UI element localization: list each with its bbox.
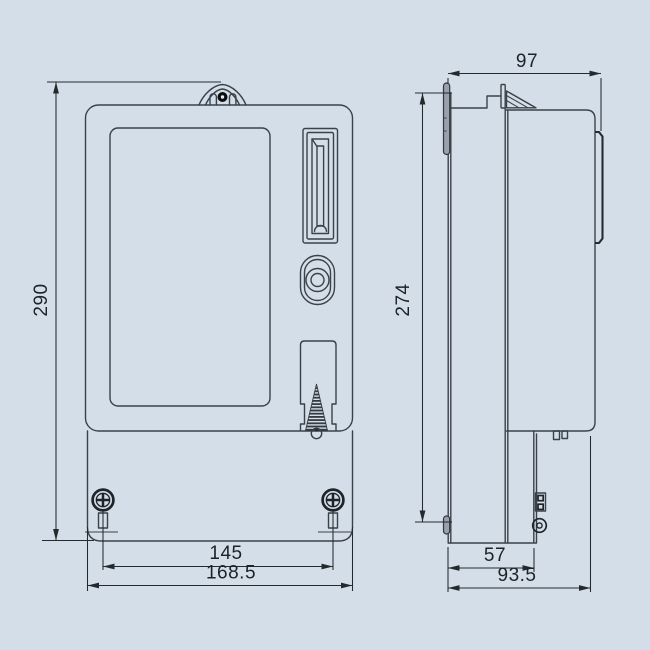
side-view: 97 274 57 93.5	[393, 51, 603, 592]
rail-bracket-bottom	[444, 516, 450, 534]
dimension-body-height: 274	[393, 93, 452, 522]
push-button[interactable]	[301, 256, 335, 305]
dim-label-57: 57	[484, 545, 506, 566]
mounting-screw-right	[323, 490, 344, 511]
dim-label-168-5: 168.5	[206, 563, 256, 584]
dim-label-145: 145	[209, 543, 242, 564]
cover-tab-2	[562, 431, 568, 439]
top-step-profile	[451, 96, 501, 108]
body-divider	[505, 108, 508, 543]
back-plate	[448, 93, 451, 543]
hanger-edge-block	[501, 85, 505, 109]
button-ring-mid	[305, 260, 331, 301]
display-window	[110, 128, 270, 406]
front-cover-profile	[507, 110, 596, 431]
seal-screw-square-1	[538, 496, 543, 501]
rail-bracket-top	[444, 83, 450, 155]
terminal-cover-profile	[448, 431, 536, 543]
card-slot	[303, 129, 338, 244]
card-slot-bevel	[312, 139, 317, 147]
terminal-cover-front	[88, 431, 353, 541]
hanger-wedge	[507, 91, 537, 108]
technical-drawing: 290 145 168.5	[0, 0, 650, 650]
hanger-slot-left	[210, 94, 216, 105]
terminal-seal-screw-lower	[533, 519, 547, 533]
seal-screw-ring	[533, 519, 547, 533]
card-slot-recess	[312, 139, 329, 234]
hanger-hole-center	[221, 95, 224, 98]
seal-screw-dot	[315, 429, 318, 432]
dim-label-93-5: 93.5	[498, 565, 537, 586]
striped-wedge	[306, 384, 328, 431]
seal-screw-square-2	[538, 504, 543, 509]
hanger-bracket	[199, 85, 246, 106]
dimension-base-depth: 93.5	[448, 436, 591, 592]
bezel-protrusion	[595, 132, 603, 243]
dim-label-290: 290	[31, 283, 52, 316]
front-view: 290 145 168.5	[31, 82, 353, 591]
mounting-screw-left	[93, 490, 114, 511]
dim-label-274: 274	[393, 283, 414, 316]
cover-tab-1	[554, 431, 560, 440]
hanger-wedge-hatch	[507, 93, 533, 108]
drawing-svg: 290 145 168.5	[0, 0, 650, 650]
button-circle-inner	[311, 274, 324, 287]
card-slot-bezel-inner	[307, 133, 334, 240]
seal-screw-pin	[537, 523, 542, 528]
dim-label-97: 97	[516, 51, 538, 72]
button-circle-outer	[306, 269, 329, 292]
dimension-depth-overall: 97	[448, 51, 601, 131]
dimension-height-overall: 290	[31, 82, 221, 541]
card-slot-opening	[317, 146, 324, 226]
seal-panel	[301, 341, 337, 439]
